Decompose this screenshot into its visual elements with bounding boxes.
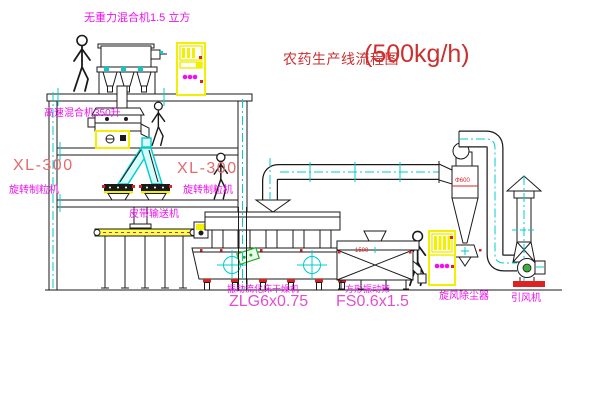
rotary-granulator — [102, 184, 135, 200]
label-granulator-right-model: XL-300 — [177, 161, 238, 177]
person-icon — [152, 102, 164, 145]
label-gravity-free-mixer: 无重力混合机1.5 立方 — [84, 13, 190, 24]
fluid-bed-dryer — [192, 212, 352, 290]
belt-conveyor — [94, 222, 208, 288]
vibrating-screen — [337, 231, 426, 289]
induced-draft-fan — [513, 259, 545, 288]
control-cabinet — [429, 231, 455, 285]
control-cabinet — [177, 43, 205, 95]
cyclone-separator — [452, 143, 482, 266]
label-cyclone: 旋风除尘器 — [439, 292, 489, 302]
label-high-speed-mixer: 高速混合机350升 — [44, 109, 121, 119]
label-granulator-left: 旋转制粒机 — [9, 186, 59, 196]
annotation-screen-dim: 1500 — [355, 248, 368, 254]
label-belt-conveyor: 皮带输送机 — [129, 210, 179, 220]
label-dryer-model: ZLG6x0.75 — [229, 294, 308, 310]
person-icon — [74, 36, 90, 92]
label-granulator-right: 旋转制粒机 — [183, 186, 233, 196]
annotation-cyclone-dim: Φ600 — [455, 178, 470, 184]
page-title-capacity: (500kg/h) — [364, 42, 470, 67]
gravity-free-mixer — [97, 44, 167, 94]
process-flow-diagram: 无重力混合机1.5 立方 高速混合机350升 XL-300 旋转制粒机 XL-3… — [0, 0, 600, 403]
label-fan: 引风机 — [511, 294, 541, 304]
label-screen-model: FS0.6x1.5 — [336, 294, 409, 310]
rotary-granulator — [139, 184, 172, 200]
label-granulator-left-model: XL-300 — [13, 158, 74, 174]
exhaust-duct — [256, 158, 452, 212]
